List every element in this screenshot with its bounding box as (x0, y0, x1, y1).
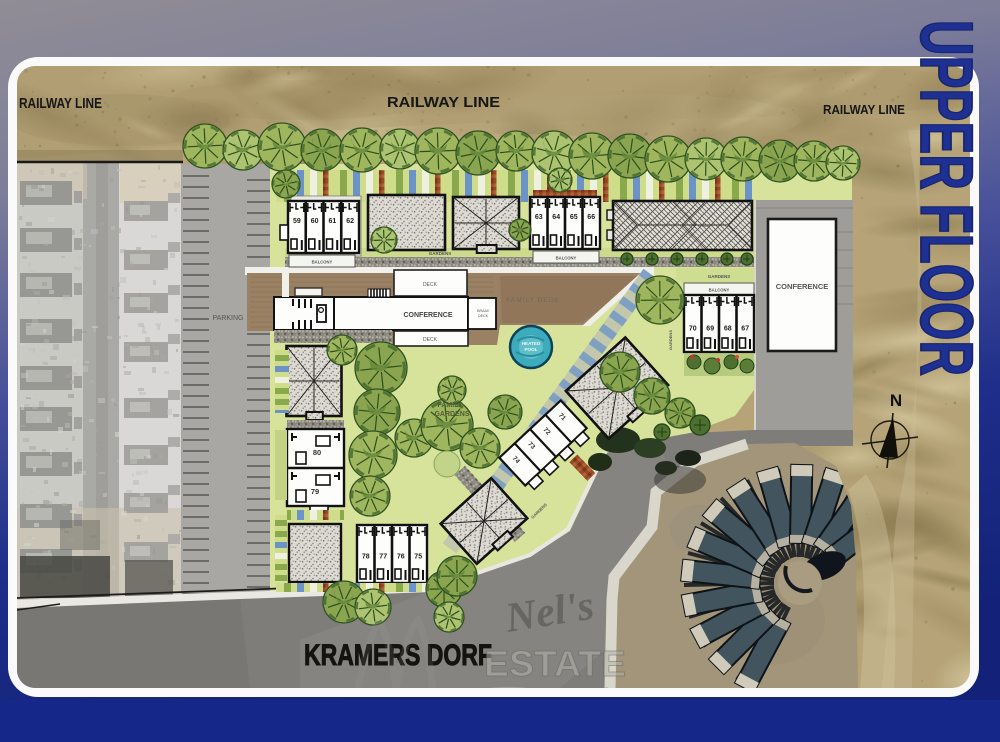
svg-text:CONFERENCE: CONFERENCE (403, 312, 452, 319)
svg-text:FAMILY DECK: FAMILY DECK (506, 297, 559, 304)
svg-text:68: 68 (724, 325, 732, 332)
svg-text:66: 66 (587, 214, 595, 221)
svg-text:HEATED: HEATED (522, 341, 541, 346)
svg-text:59: 59 (293, 218, 301, 225)
svg-text:POOL: POOL (524, 347, 537, 352)
svg-text:70: 70 (689, 325, 697, 332)
svg-text:80: 80 (313, 448, 321, 457)
svg-text:76: 76 (397, 554, 405, 561)
svg-text:UPPER FLOOR: UPPER FLOOR (905, 20, 988, 376)
svg-text:GARDENS: GARDENS (668, 330, 673, 350)
svg-text:RAILWAY LINE: RAILWAY LINE (823, 102, 905, 117)
svg-text:64: 64 (552, 214, 560, 221)
svg-text:GARDENS: GARDENS (708, 274, 731, 279)
svg-text:63: 63 (535, 214, 543, 221)
svg-text:69: 69 (706, 325, 714, 332)
svg-text:BRAAI/: BRAAI/ (477, 309, 489, 313)
svg-text:DECK: DECK (478, 314, 489, 318)
svg-text:CONFERENCE: CONFERENCE (776, 282, 829, 291)
svg-text:BALCONY: BALCONY (709, 288, 730, 293)
svg-text:60: 60 (311, 218, 319, 225)
svg-text:62: 62 (346, 218, 354, 225)
svg-text:75: 75 (414, 554, 422, 561)
svg-text:RAILWAY LINE: RAILWAY LINE (19, 95, 102, 112)
svg-text:HALL: HALL (700, 223, 711, 228)
svg-text:79: 79 (311, 487, 319, 496)
svg-text:GARDENS: GARDENS (429, 251, 452, 256)
svg-text:78: 78 (362, 554, 370, 561)
svg-text:DECK: DECK (423, 282, 438, 288)
svg-text:N: N (890, 391, 902, 410)
svg-text:67: 67 (741, 325, 749, 332)
svg-text:61: 61 (329, 218, 337, 225)
svg-text:65: 65 (570, 214, 578, 221)
svg-text:FAMILY: FAMILY (437, 402, 462, 409)
svg-text:GARDENS: GARDENS (434, 411, 469, 418)
svg-text:ESTATE: ESTATE (484, 643, 626, 684)
svg-text:77: 77 (379, 554, 387, 561)
svg-text:BALCONY: BALCONY (556, 256, 577, 261)
svg-text:RAILWAY LINE: RAILWAY LINE (387, 94, 500, 111)
svg-text:DECK: DECK (423, 337, 438, 343)
svg-text:PARKING: PARKING (213, 315, 244, 322)
svg-text:BALCONY: BALCONY (312, 260, 333, 265)
